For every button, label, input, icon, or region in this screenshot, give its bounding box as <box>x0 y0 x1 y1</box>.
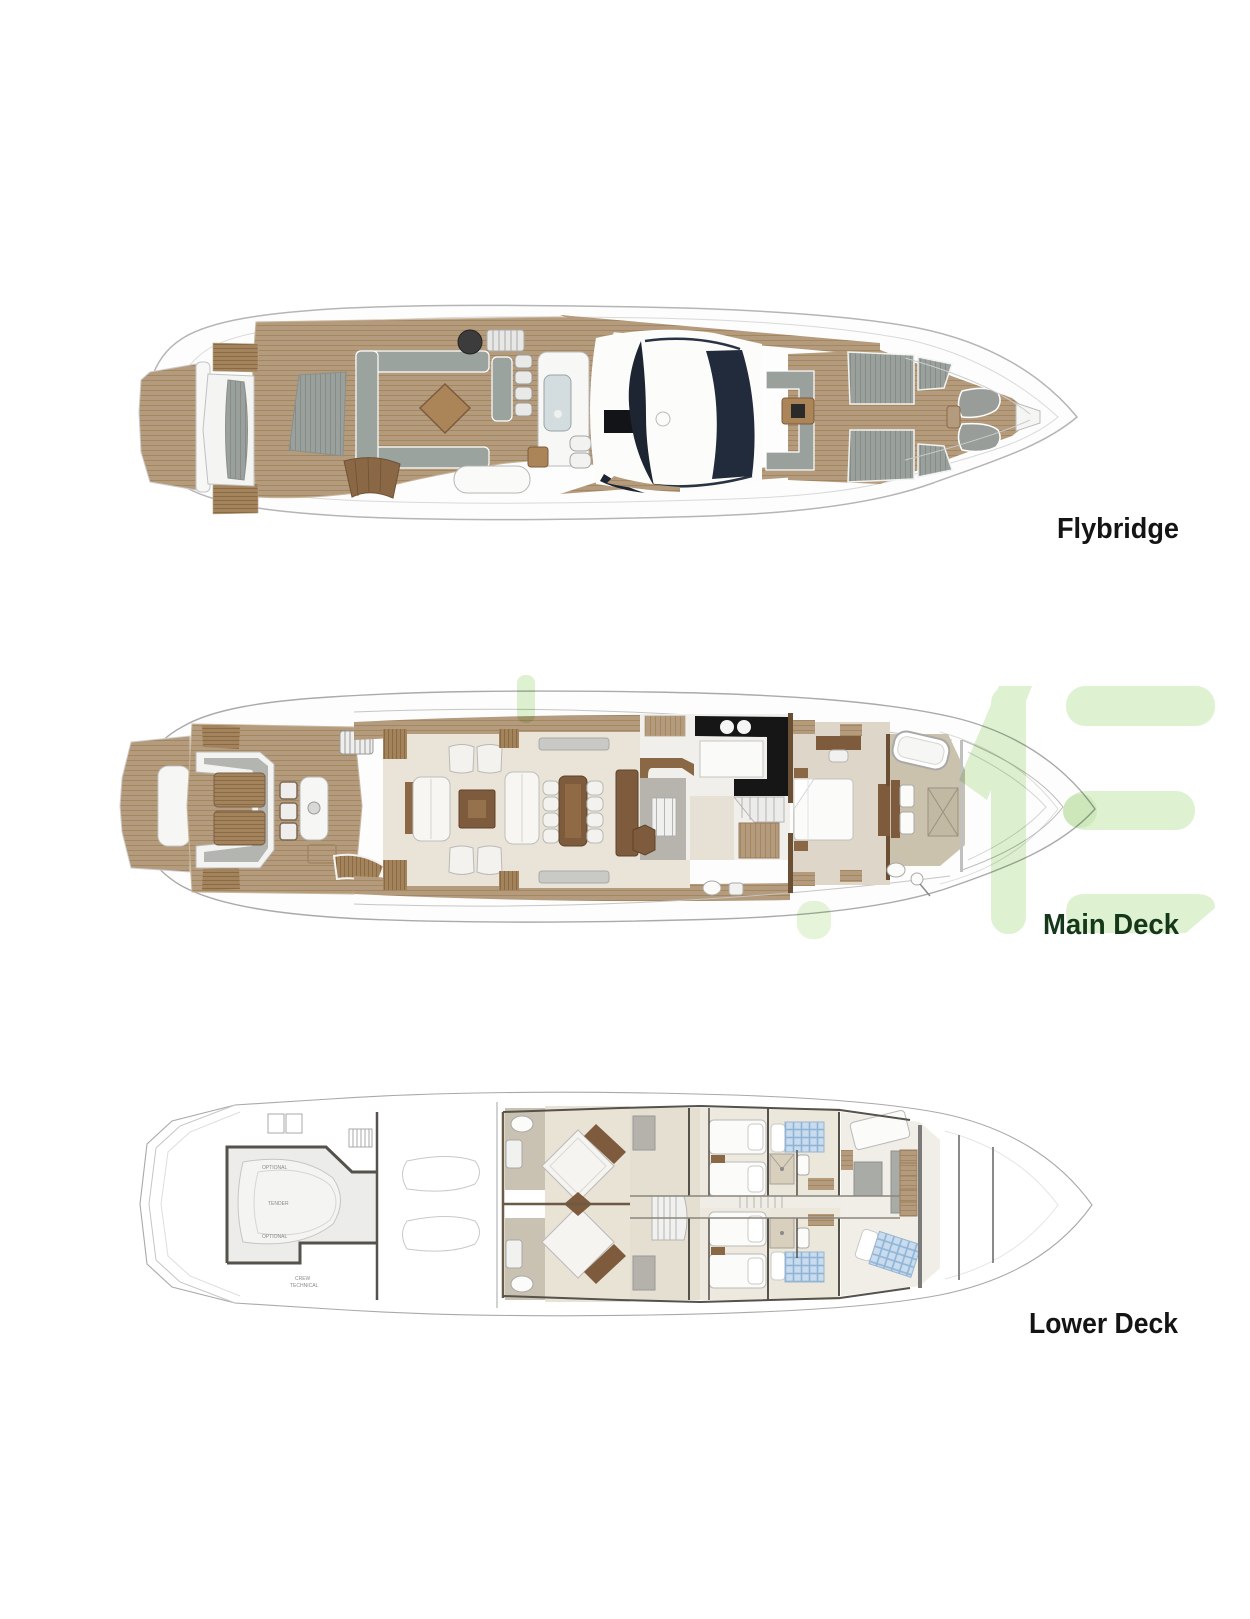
svg-text:Flybridge: Flybridge <box>1057 513 1179 545</box>
svg-text:OPTIONAL: OPTIONAL <box>262 1165 288 1171</box>
svg-text:Lower Deck: Lower Deck <box>1029 1308 1179 1340</box>
svg-text:OPTIONAL: OPTIONAL <box>262 1234 288 1240</box>
svg-text:TENDER: TENDER <box>268 1201 289 1207</box>
svg-text:CREW: CREW <box>295 1276 311 1282</box>
svg-text:TECHNICAL: TECHNICAL <box>290 1283 319 1289</box>
svg-text:Main Deck: Main Deck <box>1043 909 1180 941</box>
